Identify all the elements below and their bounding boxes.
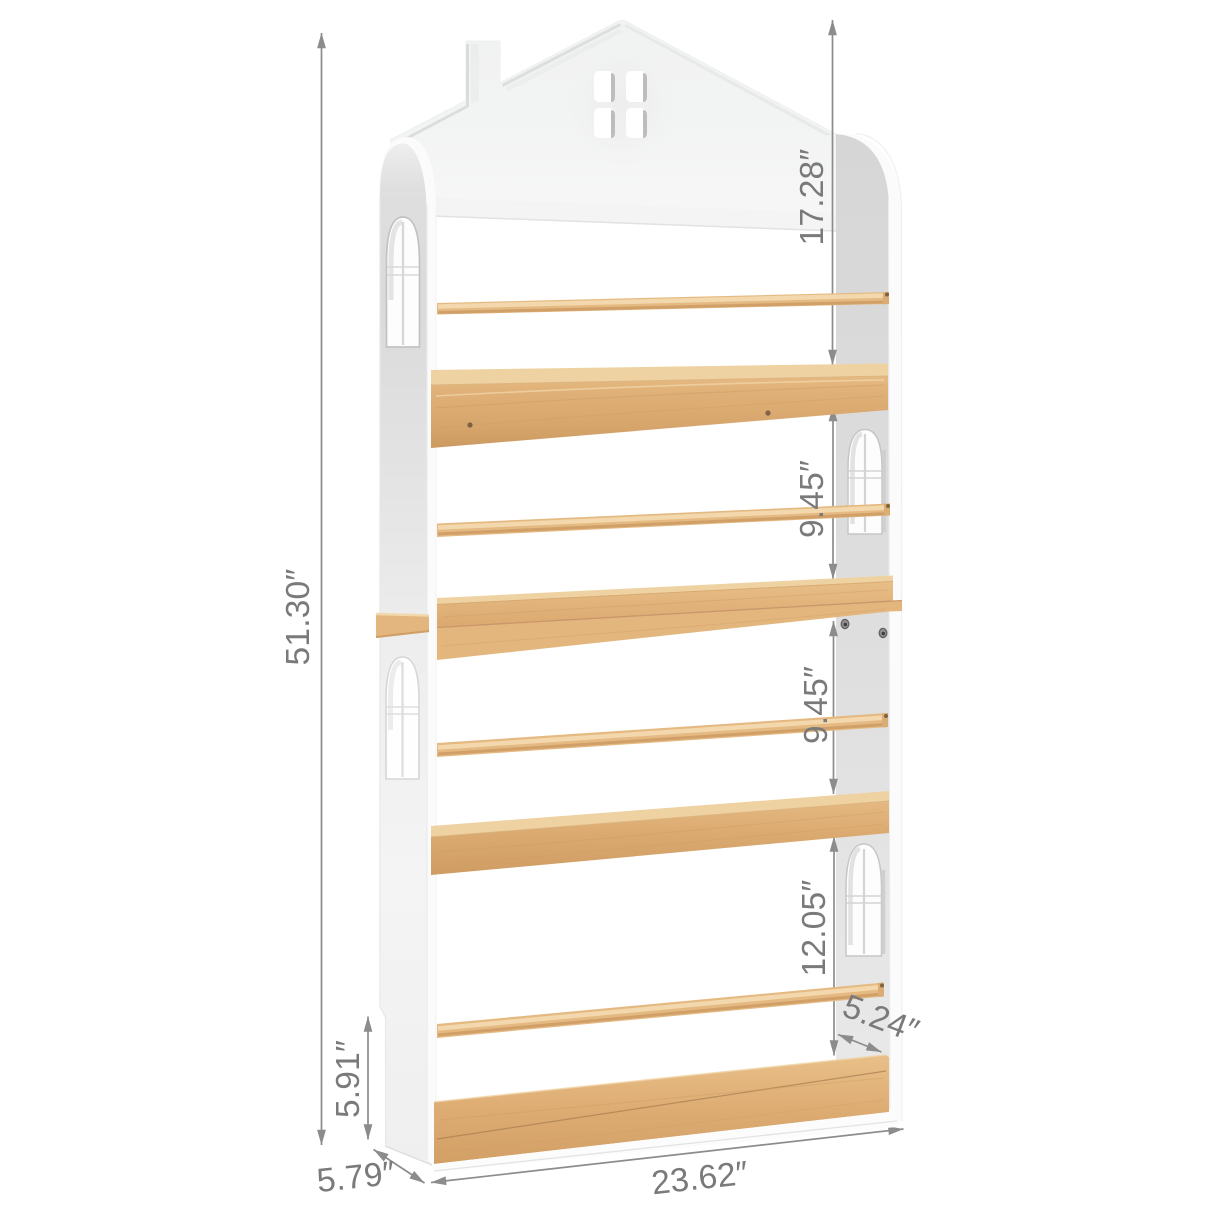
- svg-text:51.30″: 51.30″: [280, 569, 317, 666]
- svg-text:9.45″: 9.45″: [794, 460, 831, 538]
- svg-text:5.91″: 5.91″: [330, 1040, 367, 1118]
- svg-text:9.45″: 9.45″: [798, 666, 835, 744]
- svg-text:17.28″: 17.28″: [794, 149, 831, 246]
- svg-text:12.05″: 12.05″: [796, 880, 833, 977]
